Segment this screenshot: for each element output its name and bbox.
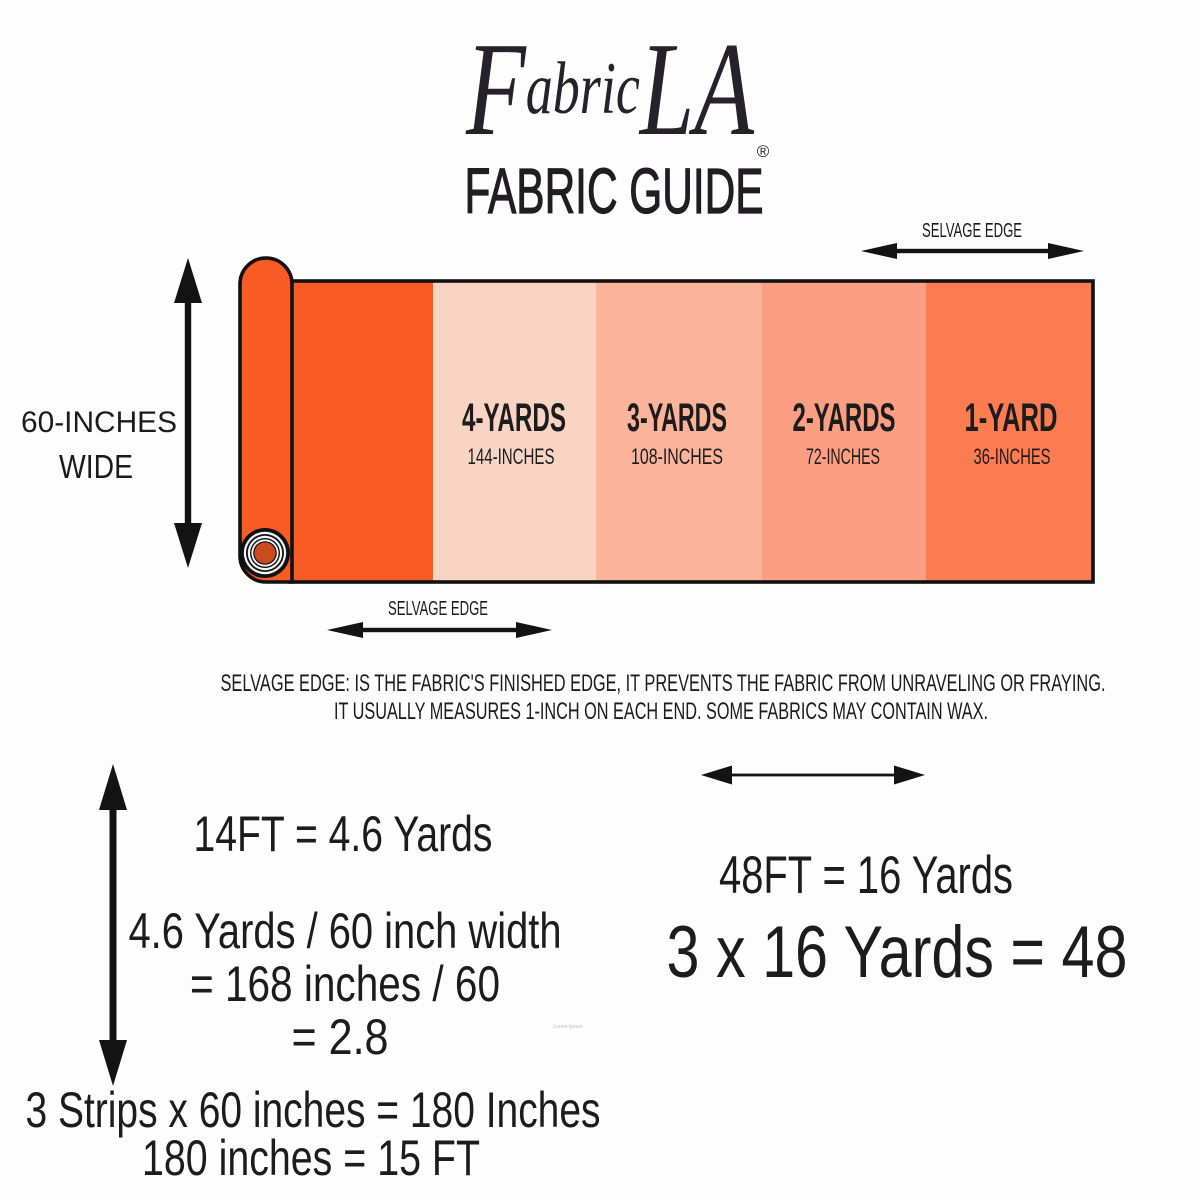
svg-text:108-INCHES: 108-INCHES: [631, 444, 723, 469]
svg-text:4-YARDS: 4-YARDS: [462, 396, 566, 440]
svg-text:180 inches = 15 FT: 180 inches = 15 FT: [142, 1130, 480, 1186]
svg-text:144-INCHES: 144-INCHES: [468, 444, 555, 469]
svg-text:Lorem Ipsum: Lorem Ipsum: [553, 1024, 582, 1030]
svg-text:FabricLA: FabricLA: [465, 15, 755, 163]
svg-text:SELVAGE EDGE: SELVAGE EDGE: [922, 220, 1022, 242]
svg-text:48FT = 16 Yards: 48FT = 16 Yards: [719, 846, 1013, 905]
svg-text:3 x 16 Yards = 48: 3 x 16 Yards = 48: [667, 912, 1128, 993]
svg-text:= 168 inches / 60: = 168 inches / 60: [190, 956, 500, 1012]
svg-text:SELVAGE EDGE: SELVAGE EDGE: [388, 598, 488, 620]
svg-text:60-INCHES: 60-INCHES: [21, 406, 177, 439]
svg-text:SELVAGE EDGE: IS THE FABRIC'S: SELVAGE EDGE: IS THE FABRIC'S FINISHED E…: [221, 670, 1106, 697]
svg-text:IT USUALLY MEASURES 1-INCH ON: IT USUALLY MEASURES 1-INCH ON EACH END. …: [334, 698, 988, 725]
svg-text:14FT = 4.6 Yards: 14FT = 4.6 Yards: [194, 806, 493, 862]
svg-text:3-YARDS: 3-YARDS: [627, 396, 727, 440]
svg-text:2-YARDS: 2-YARDS: [793, 396, 896, 440]
svg-text:36-INCHES: 36-INCHES: [974, 444, 1051, 469]
svg-text:= 2.8: = 2.8: [292, 1009, 389, 1065]
svg-text:72-INCHES: 72-INCHES: [806, 444, 880, 469]
svg-text:FABRIC GUIDE: FABRIC GUIDE: [465, 155, 764, 227]
svg-text:WIDE: WIDE: [59, 448, 133, 485]
svg-text:4.6 Yards / 60 inch width: 4.6 Yards / 60 inch width: [129, 903, 562, 959]
svg-text:1-YARD: 1-YARD: [965, 396, 1058, 440]
